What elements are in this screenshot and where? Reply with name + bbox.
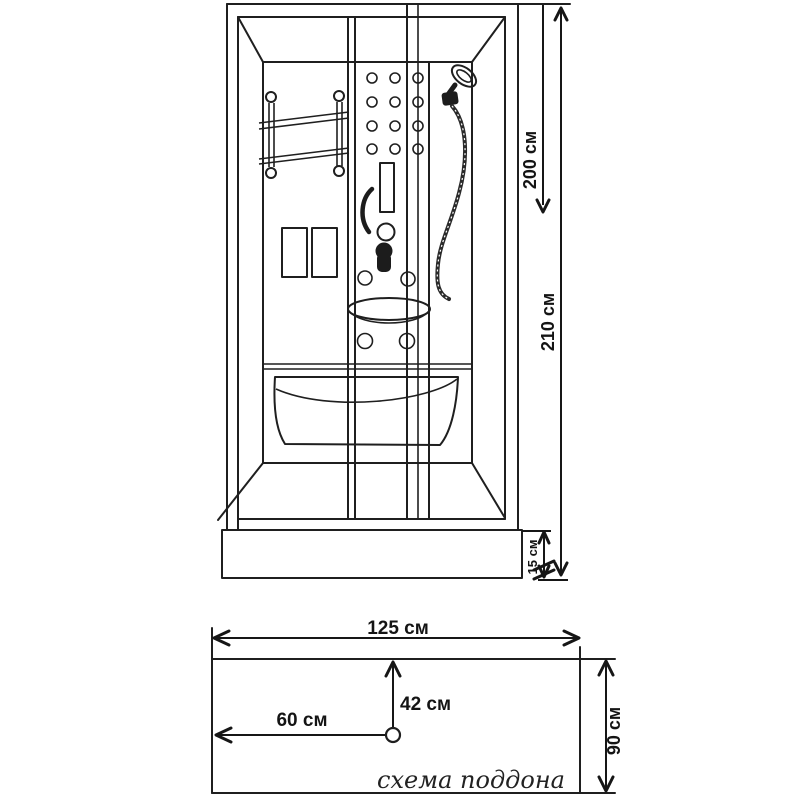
side-jet [358, 334, 373, 349]
shower-hose [437, 106, 465, 299]
body-jets-grid [367, 73, 423, 154]
speaker-grilles [282, 228, 337, 277]
control-display [380, 163, 394, 212]
drain-hole [386, 728, 400, 742]
tray-schematic-caption: схема поддона [377, 766, 565, 794]
cabin-floor [218, 463, 505, 520]
dim-210cm-label: 210 см [538, 293, 558, 351]
front-view: 200 см 210 см 15 см [218, 4, 570, 580]
panel-handle [363, 189, 372, 232]
dim-90cm-label: 90 см [604, 707, 624, 755]
seat-tub [274, 377, 458, 445]
faucet-lever [376, 243, 393, 273]
dim-200cm-label: 200 см [520, 131, 540, 189]
towel-rack [259, 91, 349, 178]
cabin-outer-frame [227, 4, 570, 529]
hand-shower [437, 61, 480, 299]
diverter-knob [378, 224, 395, 241]
dim-42cm: 42 см [386, 662, 451, 727]
dim-200cm: 200 см [520, 5, 549, 212]
dim-60cm-label: 60 см [276, 710, 327, 731]
cabin-back-wall [263, 62, 472, 463]
tray-schematic: 125 см 90 см 42 см 60 см схема поддона [212, 618, 624, 794]
shower-bracket [441, 91, 459, 106]
base-tray-side [222, 530, 522, 578]
dim-90cm: 90 см [599, 661, 624, 791]
shower-cabin-technical-drawing: 200 см 210 см 15 см [0, 0, 800, 800]
side-jet [358, 271, 372, 285]
dim-15cm-label: 15 см [525, 540, 540, 575]
dim-125cm-label: 125 см [367, 618, 429, 639]
dim-125cm: 125 см [214, 618, 579, 645]
dim-60cm: 60 см [216, 710, 385, 742]
drawing-canvas: 200 см 210 см 15 см [0, 0, 800, 800]
shower-hose-coil [437, 106, 465, 299]
dim-42cm-label: 42 см [400, 694, 451, 715]
